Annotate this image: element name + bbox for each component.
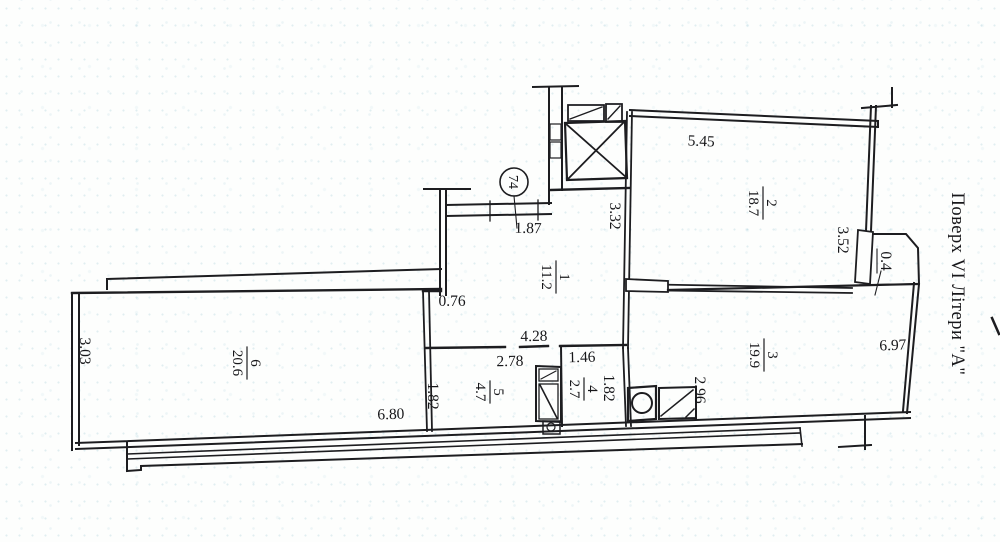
room2-number: 2 [763,199,779,207]
riser-duct-icon [550,124,561,158]
room1-area: 11.2 [538,264,554,290]
dim-corridor-run: 4.28 [520,328,548,345]
room6-number: 6 [247,359,263,367]
room1-label: 1 11.2 [538,261,572,293]
elevator-shaft-icon [565,121,627,180]
sink-icon [628,386,656,421]
dim-entry-door: 1.87 [514,220,542,237]
room4-number: 4 [584,385,600,393]
room3-area: 19.9 [746,342,762,368]
room3-label: 3 19.9 [746,339,780,371]
dim-room3-left: 2.96 [691,376,708,403]
dim-room3-width: 6.97 [879,337,907,355]
bathtub-icon [536,366,561,422]
dim-room5-width: 2.78 [496,353,524,370]
room3-number: 3 [764,351,780,359]
wall-pier [626,279,668,292]
room5-label: 5 4.7 [472,381,506,403]
interior-walls [423,112,919,431]
service-shaft-icon [568,104,622,122]
room4-area: 2.7 [566,380,582,399]
room6-area: 20.6 [229,350,245,377]
room4-label: 4 2.7 [566,378,600,400]
dimension-labels: 1.87 3.32 5.45 3.52 0.4 6.97 2.96 0.76 4… [76,132,907,423]
dim-hall-depth: 3.32 [606,202,623,229]
countertop-icon [659,387,696,419]
room2-area: 18.7 [745,190,761,217]
dim-room2-width: 5.45 [687,132,715,150]
room1-number: 1 [556,273,572,281]
room5-area: 4.7 [472,383,488,402]
floor-caption: Поверх VI Літери "А" [947,193,967,376]
floor-plan: 74 1.87 3.32 5.45 3.52 0.4 6.97 2.96 0.7… [0,0,1000,542]
dim-room6-width: 6.80 [377,406,405,424]
dim-niche: 0.76 [438,293,465,310]
apartment-number: 74 [505,175,520,189]
room6-label: 6 20.6 [229,347,263,379]
dim-room2-depth: 3.52 [834,226,851,253]
room5-number: 5 [490,388,506,396]
scanned-floor-plan-page: 74 1.87 3.32 5.45 3.52 0.4 6.97 2.96 0.7… [0,0,1000,542]
room-labels: 1 11.2 2 18.7 3 19.9 4 2.7 5 4.7 6 20.6 [229,187,780,403]
wall-pier [855,230,873,284]
dim-room4-width: 1.46 [568,349,596,366]
dim-room6-depth: 3.03 [76,337,93,364]
dim-small-balcony: 0.4 [877,251,894,271]
dim-room5-depth: 1.82 [424,382,441,409]
room2-label: 2 18.7 [745,187,779,219]
dim-room4-depth: 1.82 [600,374,617,401]
